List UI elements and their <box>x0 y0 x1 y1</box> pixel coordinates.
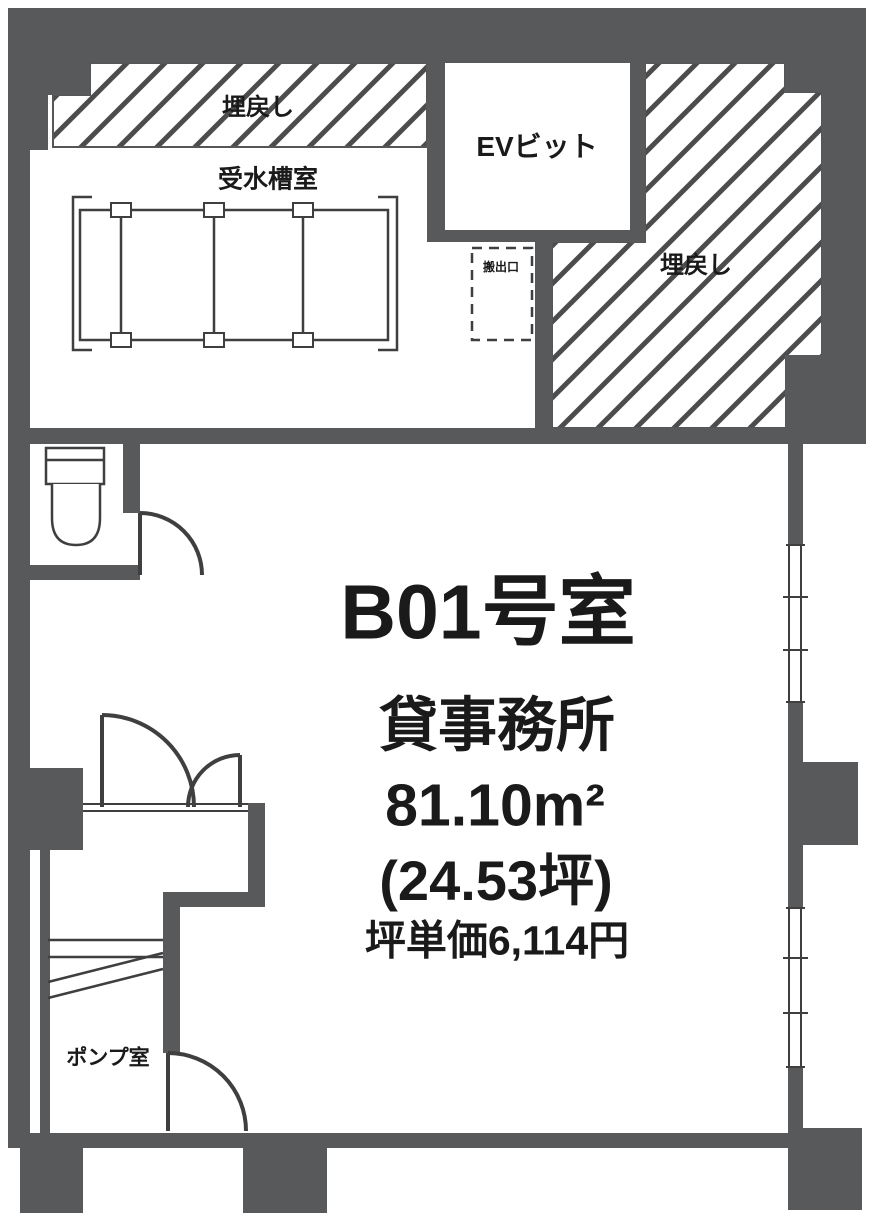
pillar-right-mid-lower <box>788 762 858 845</box>
toilet-fixture <box>46 448 104 545</box>
wall-vestibule-bottom <box>163 892 265 907</box>
pillar-bottom-mid <box>243 1148 327 1213</box>
toilet-bowl <box>52 484 100 545</box>
wall-right-lower-1 <box>788 444 803 545</box>
wall-toilet-bottom <box>8 565 140 580</box>
pillar-left-mid <box>8 768 83 850</box>
window-upper <box>783 545 808 702</box>
wall-bottom <box>8 1133 803 1148</box>
wall-ev-pit-right <box>630 63 645 242</box>
wall-ev-pit-bottom <box>427 230 645 242</box>
unit-price: 坪単価6,114円 <box>365 921 629 962</box>
pillar-bottom-left <box>20 1148 83 1213</box>
unit-area-sqm: 81.10m² <box>385 777 605 836</box>
wall-below-ev-pit <box>535 242 552 428</box>
unit-area-tsubo: (24.53坪) <box>379 853 612 909</box>
wall-right-lower-3 <box>788 1067 803 1133</box>
wall-left <box>8 63 30 1148</box>
window-lower <box>783 908 808 1067</box>
wall-right-upper <box>822 63 866 360</box>
backfill-right-area <box>552 63 822 428</box>
water-tank-room-label: 受水槽室 <box>218 168 318 193</box>
pillar-bottom-right <box>788 1128 862 1210</box>
pump-room-door <box>168 1053 246 1131</box>
service-opening-label: 搬出口 <box>483 261 519 273</box>
wall-ev-pit-left <box>427 63 445 242</box>
wall-top-left-step <box>48 8 90 95</box>
pump-room-label: ポンプ室 <box>66 1048 149 1069</box>
ev-pit-label: EVビット <box>476 133 597 161</box>
water-tank-symbol <box>73 197 397 350</box>
floor-plan: 埋戻し 受水槽室 EVビット 搬出口 埋戻し B01号室 貸事務所 81.10m… <box>0 0 874 1226</box>
wall-divider-horizontal <box>8 428 788 444</box>
entrance-double-door <box>83 715 248 811</box>
toilet-tank <box>46 448 104 484</box>
pillar-right-mid-upper <box>785 355 866 444</box>
stairs-symbol <box>48 940 163 998</box>
unit-usage: 貸事務所 <box>379 697 615 756</box>
wall-vestibule-right <box>248 803 265 907</box>
wall-pump-room-right <box>163 907 180 1053</box>
wall-toilet-right <box>123 444 140 513</box>
tank-body <box>80 210 388 340</box>
backfill-top-label: 埋戻し <box>222 96 294 120</box>
wall-pump-room-left <box>40 850 50 1133</box>
wall-top <box>8 8 866 63</box>
room-number: B01号室 <box>340 575 635 652</box>
toilet-door <box>140 513 202 575</box>
backfill-right-label: 埋戻し <box>660 254 732 278</box>
